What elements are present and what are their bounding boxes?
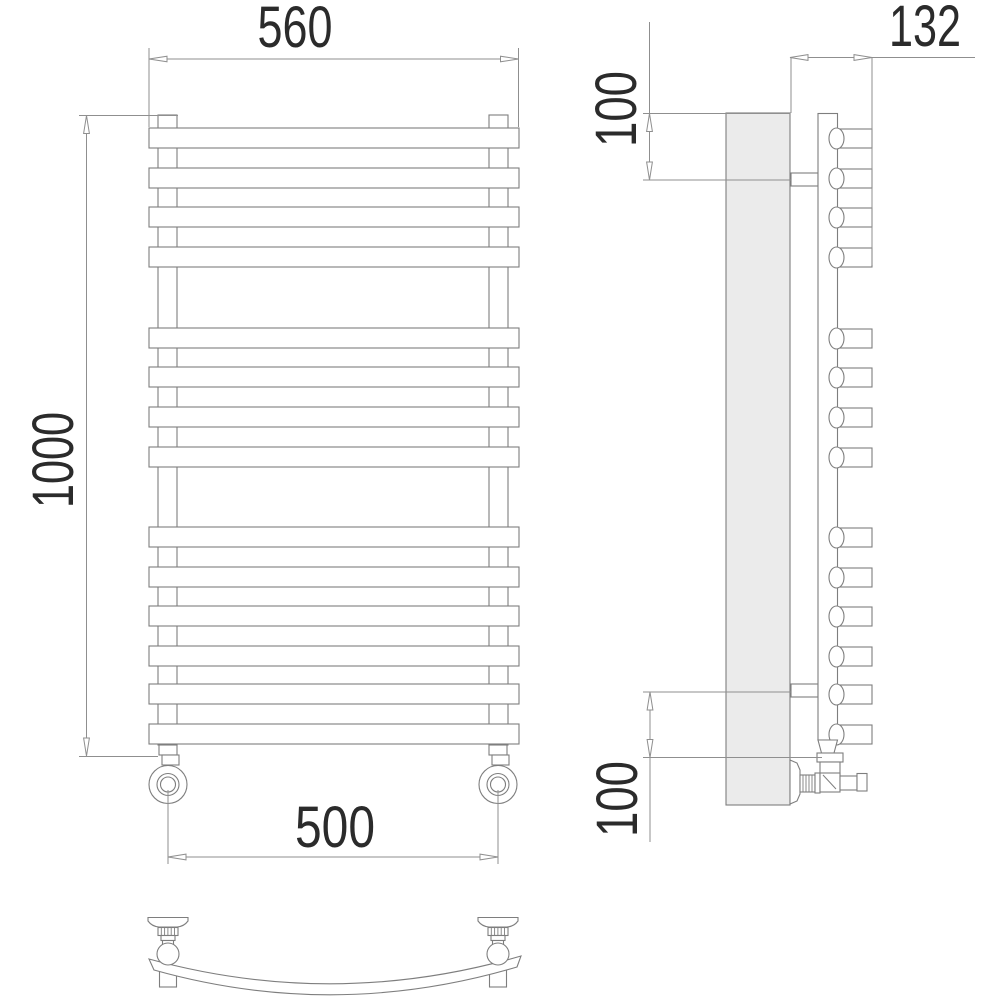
dim-connection-spacing: 500 <box>168 790 498 864</box>
side-tube-end-cap <box>829 207 844 228</box>
valve-collar <box>492 755 509 765</box>
side-tube-end-cap <box>829 367 844 388</box>
arrowhead <box>480 854 498 860</box>
wall-section <box>726 113 790 805</box>
front-bar <box>149 567 519 587</box>
dim-label-depth: 132 <box>889 0 961 59</box>
side-valve-assembly <box>790 740 867 804</box>
side-tube-end-cap <box>829 328 844 349</box>
wall-tail-piece <box>790 760 800 804</box>
arrowhead <box>790 55 808 61</box>
side-tube-end-cap <box>829 606 844 627</box>
valve-adapter <box>815 773 820 793</box>
valve-spout-cap <box>857 774 867 792</box>
valve-circle <box>161 777 176 792</box>
dim-overall-width: 560 <box>149 0 519 127</box>
front-bar <box>149 128 519 148</box>
collector-taper <box>818 740 838 753</box>
bottom-view <box>148 918 521 995</box>
dim-label-overall-height: 1000 <box>21 412 86 508</box>
arrowhead <box>149 56 167 62</box>
bottom-valve-collar <box>161 936 175 941</box>
side-tube-end-cap <box>829 447 844 468</box>
side-view: 132 100 100 <box>584 0 975 842</box>
front-bar <box>149 328 519 348</box>
front-bar <box>149 684 519 704</box>
wall-bracket-top <box>791 173 818 186</box>
bottom-valve-collar <box>491 936 505 941</box>
side-tube-end-cap <box>829 407 844 428</box>
bottom-valve-handle <box>148 918 188 928</box>
technical-drawing: 560 1000 500 <box>0 0 1000 1000</box>
side-tube-end-cap <box>829 168 844 189</box>
dim-label-overall-width: 560 <box>258 0 333 60</box>
arrowhead <box>647 692 653 710</box>
front-bar <box>149 527 519 547</box>
arrowhead <box>854 55 872 61</box>
wall-bracket-bottom <box>791 684 818 697</box>
front-bar <box>149 207 519 227</box>
front-bar <box>149 367 519 387</box>
arrowhead <box>501 56 519 62</box>
arrowhead <box>168 854 186 860</box>
front-bar <box>149 407 519 427</box>
arrowhead <box>84 116 90 134</box>
front-bar <box>149 447 519 467</box>
bottom-valve-ball <box>487 943 509 965</box>
valve-spout <box>840 776 857 790</box>
arrowhead <box>647 162 653 180</box>
dim-label-bottom-offset: 100 <box>585 761 650 837</box>
dim-label-connection-spacing: 500 <box>295 795 375 860</box>
curved-bar-top-view <box>149 956 521 995</box>
front-bar <box>149 247 519 267</box>
bottom-balls <box>157 943 509 965</box>
valve-collar <box>162 755 179 765</box>
front-bar <box>149 606 519 626</box>
front-bars <box>149 128 519 744</box>
front-view: 560 1000 500 <box>21 0 519 864</box>
arrowhead <box>84 738 90 756</box>
side-tube-end-cap <box>829 128 844 149</box>
front-bar <box>149 646 519 666</box>
drawing-svg: 560 1000 500 <box>0 0 1000 1000</box>
front-bar <box>149 724 519 744</box>
valve-knurl <box>800 775 815 792</box>
bottom-valve-handle <box>478 918 518 928</box>
side-tube-end-cap <box>829 527 844 548</box>
valve-circle <box>491 777 506 792</box>
side-tube-end-cap <box>829 567 844 588</box>
side-tube-end-cap <box>829 646 844 667</box>
valve-neck <box>159 745 177 755</box>
side-tube-end-cap <box>829 247 844 268</box>
front-bar <box>149 168 519 188</box>
valve-neck <box>489 745 507 755</box>
side-tube-end-cap <box>829 684 844 705</box>
arrowhead <box>647 740 653 758</box>
dim-label-top-offset: 100 <box>584 71 649 147</box>
bottom-valve-ball <box>157 943 179 965</box>
